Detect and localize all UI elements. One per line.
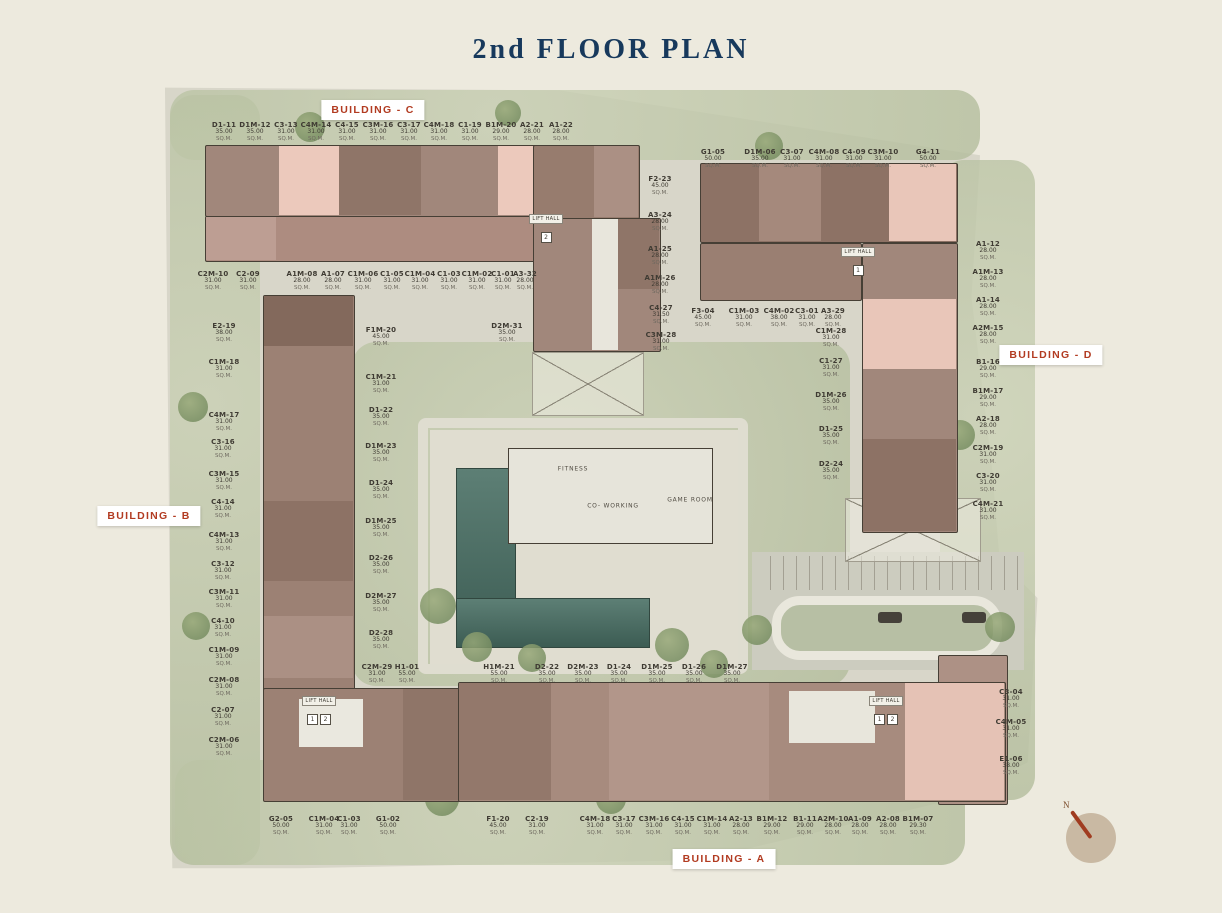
amenity-label: FITNESS	[558, 466, 588, 473]
building-c-bar	[205, 145, 577, 217]
lift-number-chip: 2	[541, 232, 552, 243]
unit-label: A1-2228.00SQ.M.	[549, 121, 573, 142]
unit-label: C1-2731.00SQ.M.	[819, 357, 843, 378]
unit-label: A1-0728.00SQ.M.	[321, 270, 345, 291]
driveway-loop	[772, 596, 1002, 660]
unit-label: C4M-0238.00SQ.M.	[764, 307, 795, 328]
tree	[182, 612, 210, 640]
lift-number-chip: 2	[320, 714, 331, 725]
unit-label: D1-2235.00SQ.M.	[369, 406, 393, 427]
lift-number-chip: 1	[307, 714, 318, 725]
unit-label: A2-2128.00SQ.M.	[520, 121, 544, 142]
building-c-lower-strip	[205, 216, 535, 262]
unit-label: D1M-2535.00SQ.M.	[365, 517, 397, 538]
unit-label: A2-1828.00SQ.M.	[976, 415, 1000, 436]
unit-label: C3-2031.00SQ.M.	[976, 472, 1000, 493]
unit-label: A1-0928.00SQ.M.	[848, 815, 872, 836]
unit-label: C2-0731.00SQ.M.	[211, 706, 235, 727]
unit-label: H1-0155.00SQ.M.	[395, 663, 419, 684]
unit-label: C3-1731.00SQ.M.	[612, 815, 636, 836]
unit-label: D1M-2735.00SQ.M.	[716, 663, 748, 684]
lift-hall: LIFT HALL12	[866, 687, 906, 725]
building-d-bar	[700, 163, 958, 243]
unit-label: C3M-1031.00SQ.M.	[868, 148, 899, 169]
unit-label: G2-0550.00SQ.M.	[269, 815, 293, 836]
unit-label: C1-0331.00SQ.M.	[337, 815, 361, 836]
unit-label: D1M-2635.00SQ.M.	[815, 391, 847, 412]
unit-label: B1M-2029.00SQ.M.	[485, 121, 516, 142]
dropoff-court	[532, 352, 644, 416]
unit-label: C2-1931.00SQ.M.	[525, 815, 549, 836]
compass-north-label: N	[1063, 800, 1070, 810]
unit-label: D1M-2535.00SQ.M.	[641, 663, 673, 684]
unit-label: C1-0331.00SQ.M.	[437, 270, 461, 291]
unit-label: D2M-3135.00SQ.M.	[491, 322, 523, 343]
unit-label: C1-0131.00SQ.M.	[491, 270, 515, 291]
unit-label: C4-1531.00SQ.M.	[671, 815, 695, 836]
building-tag: BUILDING - B	[97, 506, 200, 526]
unit-label: D2-2635.00SQ.M.	[369, 554, 393, 575]
unit-label: D1M-0635.00SQ.M.	[744, 148, 776, 169]
lift-hall: LIFT HALL2	[526, 205, 566, 243]
page-title: 2nd FLOOR PLAN	[0, 34, 1222, 66]
unit-label: A3-2428.00SQ.M.	[648, 211, 672, 232]
unit-label: F1-2045.00SQ.M.	[486, 815, 509, 836]
unit-label: D1M-2335.00SQ.M.	[365, 442, 397, 463]
unit-label: C3-1731.00SQ.M.	[397, 121, 421, 142]
unit-label: C4M-2131.00SQ.M.	[973, 500, 1004, 521]
unit-label: E1-0638.00SQ.M.	[999, 755, 1022, 776]
unit-label: C4M-1731.00SQ.M.	[209, 411, 240, 432]
unit-label: C3M-1631.00SQ.M.	[363, 121, 394, 142]
unit-label: C3-0731.00SQ.M.	[780, 148, 804, 169]
unit-label: C1M-0231.00SQ.M.	[462, 270, 493, 291]
unit-label: A2-0828.00SQ.M.	[876, 815, 900, 836]
unit-label: C2M-1931.00SQ.M.	[973, 444, 1004, 465]
building-tag: BUILDING - D	[999, 345, 1102, 365]
unit-label: A1M-2628.00SQ.M.	[644, 274, 675, 295]
building-b-corner	[263, 688, 470, 802]
unit-label: C2-0931.00SQ.M.	[236, 270, 260, 291]
unit-label: D1-2535.00SQ.M.	[819, 425, 843, 446]
unit-label: C4M-1331.00SQ.M.	[209, 531, 240, 552]
unit-label: C4-1431.00SQ.M.	[211, 498, 235, 519]
unit-label: A3-3228.00SQ.M.	[513, 270, 537, 291]
unit-label: C4M-1831.00SQ.M.	[580, 815, 611, 836]
lift-hall: LIFT HALL1	[838, 238, 878, 276]
unit-label: B1M-0729.30SQ.M.	[902, 815, 933, 836]
unit-label: C3-1231.00SQ.M.	[211, 560, 235, 581]
unit-label: A3-2928.00SQ.M.	[821, 307, 845, 328]
unit-label: C2M-2931.00SQ.M.	[362, 663, 393, 684]
unit-label: C4-1031.00SQ.M.	[211, 617, 235, 638]
unit-label: C1-1931.00SQ.M.	[458, 121, 482, 142]
lift-hall: LIFT HALL12	[299, 687, 339, 725]
unit-label: C4M-1831.00SQ.M.	[424, 121, 455, 142]
unit-label: F2-2345.00SQ.M.	[648, 175, 671, 196]
unit-label: D1-2435.00SQ.M.	[369, 479, 393, 500]
unit-label: C3-1631.00SQ.M.	[211, 438, 235, 459]
unit-label: C3-0131.00SQ.M.	[795, 307, 819, 328]
unit-label: C1M-2831.00SQ.M.	[816, 327, 847, 348]
unit-label: A1-2528.00SQ.M.	[648, 245, 672, 266]
unit-label: C1-0531.00SQ.M.	[380, 270, 404, 291]
unit-label: C3M-1131.00SQ.M.	[209, 588, 240, 609]
unit-label: C3M-1631.00SQ.M.	[639, 815, 670, 836]
unit-label: D2M-2735.00SQ.M.	[365, 592, 397, 613]
amenity-label: GAME ROOM	[667, 497, 713, 504]
unit-label: C4-0931.00SQ.M.	[842, 148, 866, 169]
unit-label: C1M-0931.00SQ.M.	[209, 646, 240, 667]
unit-label: G1-0550.00SQ.M.	[701, 148, 725, 169]
tree	[742, 615, 772, 645]
unit-label: A1-1228.00SQ.M.	[976, 240, 1000, 261]
tree	[462, 632, 492, 662]
unit-label: C4-2731.50SQ.M.	[649, 304, 673, 325]
unit-label: D2-2235.00SQ.M.	[535, 663, 559, 684]
building-d-vertical	[862, 243, 958, 533]
unit-label: C3-1331.00SQ.M.	[274, 121, 298, 142]
unit-label: F3-0445.00SQ.M.	[691, 307, 714, 328]
amenity-label: CO- WORKING	[587, 503, 639, 510]
lift-number-chip: 1	[853, 265, 864, 276]
car	[962, 612, 986, 623]
unit-label: D2-2835.00SQ.M.	[369, 629, 393, 650]
tree	[985, 612, 1015, 642]
unit-label: B1M-1229.00SQ.M.	[756, 815, 787, 836]
unit-label: G4-1150.00SQ.M.	[916, 148, 940, 169]
unit-label: A1M-1328.00SQ.M.	[972, 268, 1003, 289]
unit-label: C4M-0831.00SQ.M.	[809, 148, 840, 169]
unit-label: C4M-0531.00SQ.M.	[996, 718, 1027, 739]
unit-label: C1M-1431.00SQ.M.	[697, 815, 728, 836]
unit-label: B1-1129.00SQ.M.	[793, 815, 817, 836]
unit-label: C4-1531.00SQ.M.	[335, 121, 359, 142]
unit-label: D1-2435.00SQ.M.	[607, 663, 631, 684]
unit-label: A1-1428.00SQ.M.	[976, 296, 1000, 317]
lift-number-chip: 1	[874, 714, 885, 725]
unit-label: C1M-0631.00SQ.M.	[348, 270, 379, 291]
lift-number-chip: 2	[887, 714, 898, 725]
tree	[655, 628, 689, 662]
unit-label: C1M-0431.00SQ.M.	[309, 815, 340, 836]
tree	[420, 588, 456, 624]
unit-label: C2M-0831.00SQ.M.	[209, 676, 240, 697]
unit-label: A1M-0828.00SQ.M.	[286, 270, 317, 291]
unit-label: C1M-2131.00SQ.M.	[366, 373, 397, 394]
tree	[178, 392, 208, 422]
unit-label: B1M-1729.00SQ.M.	[972, 387, 1003, 408]
building-tag: BUILDING - A	[673, 849, 776, 869]
unit-label: A2-1328.00SQ.M.	[729, 815, 753, 836]
unit-label: D2-2435.00SQ.M.	[819, 460, 843, 481]
unit-label: D2M-2335.00SQ.M.	[567, 663, 599, 684]
unit-label: D1M-1235.00SQ.M.	[239, 121, 271, 142]
unit-label: A2M-1528.00SQ.M.	[972, 324, 1003, 345]
unit-label: C3M-2831.00SQ.M.	[646, 331, 677, 352]
unit-label: C2M-0631.00SQ.M.	[209, 736, 240, 757]
unit-label: F1M-2045.00SQ.M.	[366, 326, 396, 347]
unit-label: A2M-1028.00SQ.M.	[817, 815, 848, 836]
floor-plan: 2nd FLOOR PLAN	[0, 0, 1222, 913]
unit-label: H1M-2155.00SQ.M.	[483, 663, 515, 684]
unit-label: C3-0431.00SQ.M.	[999, 688, 1023, 709]
building-tag: BUILDING - C	[321, 100, 424, 120]
unit-label: C2M-1031.00SQ.M.	[198, 270, 229, 291]
unit-label: D1-1135.00SQ.M.	[212, 121, 236, 142]
building-a-bar	[458, 682, 1006, 802]
unit-label: C4M-1431.00SQ.M.	[301, 121, 332, 142]
compass	[1066, 813, 1116, 863]
unit-label: E2-1938.00SQ.M.	[212, 322, 235, 343]
unit-label: C3M-1531.00SQ.M.	[209, 470, 240, 491]
unit-label: G1-0250.00SQ.M.	[376, 815, 400, 836]
car	[878, 612, 902, 623]
unit-label: C1M-0431.00SQ.M.	[405, 270, 436, 291]
building-b-vertical	[263, 295, 355, 747]
unit-label: D1-2635.00SQ.M.	[682, 663, 706, 684]
unit-label: B1-1629.00SQ.M.	[976, 358, 1000, 379]
unit-label: C1M-0331.00SQ.M.	[729, 307, 760, 328]
unit-label: C1M-1831.00SQ.M.	[209, 358, 240, 379]
